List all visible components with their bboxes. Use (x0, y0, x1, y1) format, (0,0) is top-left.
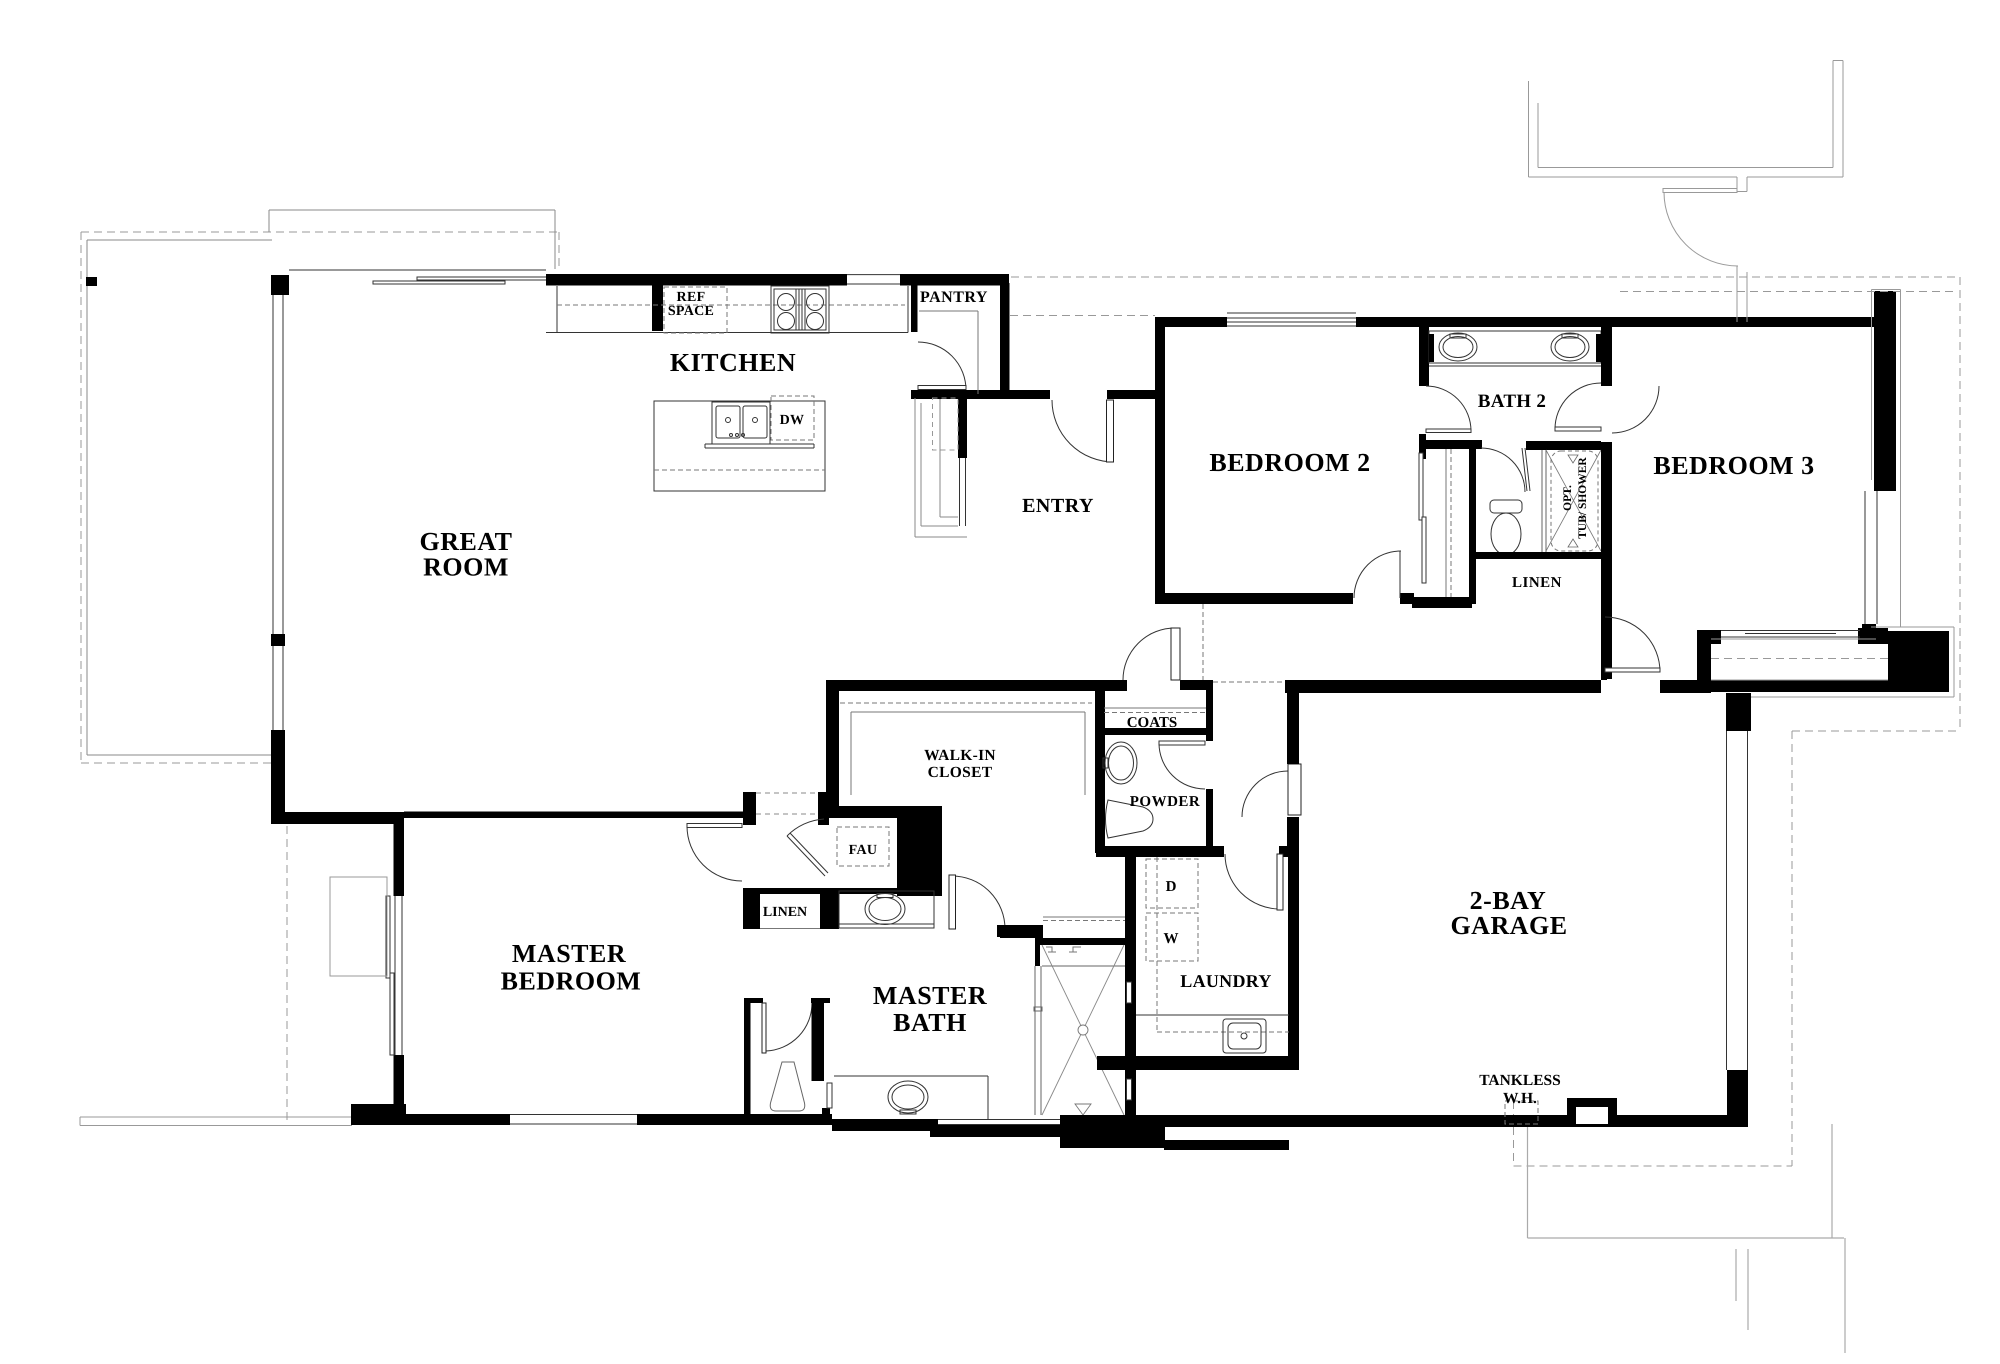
svg-text:LINEN: LINEN (763, 905, 807, 920)
svg-text:MASTER: MASTER (512, 939, 626, 968)
svg-text:DW: DW (780, 413, 805, 428)
svg-text:POWDER: POWDER (1130, 794, 1201, 810)
svg-text:TANKLESS: TANKLESS (1479, 1072, 1561, 1089)
svg-text:FAU: FAU (849, 843, 878, 858)
svg-text:BEDROOM 3: BEDROOM 3 (1653, 451, 1814, 480)
svg-text:W.H.: W.H. (1503, 1090, 1537, 1107)
svg-text:WALK-IN: WALK-IN (924, 747, 996, 764)
svg-text:LAUNDRY: LAUNDRY (1180, 971, 1271, 991)
svg-text:CLOSET: CLOSET (928, 764, 993, 781)
svg-text:GARAGE: GARAGE (1450, 911, 1567, 940)
svg-text:PANTRY: PANTRY (920, 289, 988, 306)
svg-text:LINEN: LINEN (1512, 575, 1562, 591)
svg-text:W: W (1164, 931, 1179, 947)
svg-text:D: D (1166, 879, 1177, 895)
svg-text:ENTRY: ENTRY (1022, 495, 1094, 517)
svg-text:OPT.: OPT. (1562, 485, 1574, 511)
svg-text:BEDROOM 2: BEDROOM 2 (1209, 448, 1370, 477)
svg-text:BATH: BATH (893, 1008, 967, 1037)
svg-text:TUB/ SHOWER: TUB/ SHOWER (1577, 457, 1589, 539)
svg-text:SPACE: SPACE (668, 304, 714, 319)
svg-text:BATH 2: BATH 2 (1478, 391, 1547, 412)
svg-text:KITCHEN: KITCHEN (670, 348, 796, 377)
svg-text:ROOM: ROOM (423, 553, 509, 582)
svg-text:MASTER: MASTER (873, 981, 987, 1010)
svg-text:REF: REF (677, 290, 706, 305)
svg-text:BEDROOM: BEDROOM (501, 967, 642, 996)
